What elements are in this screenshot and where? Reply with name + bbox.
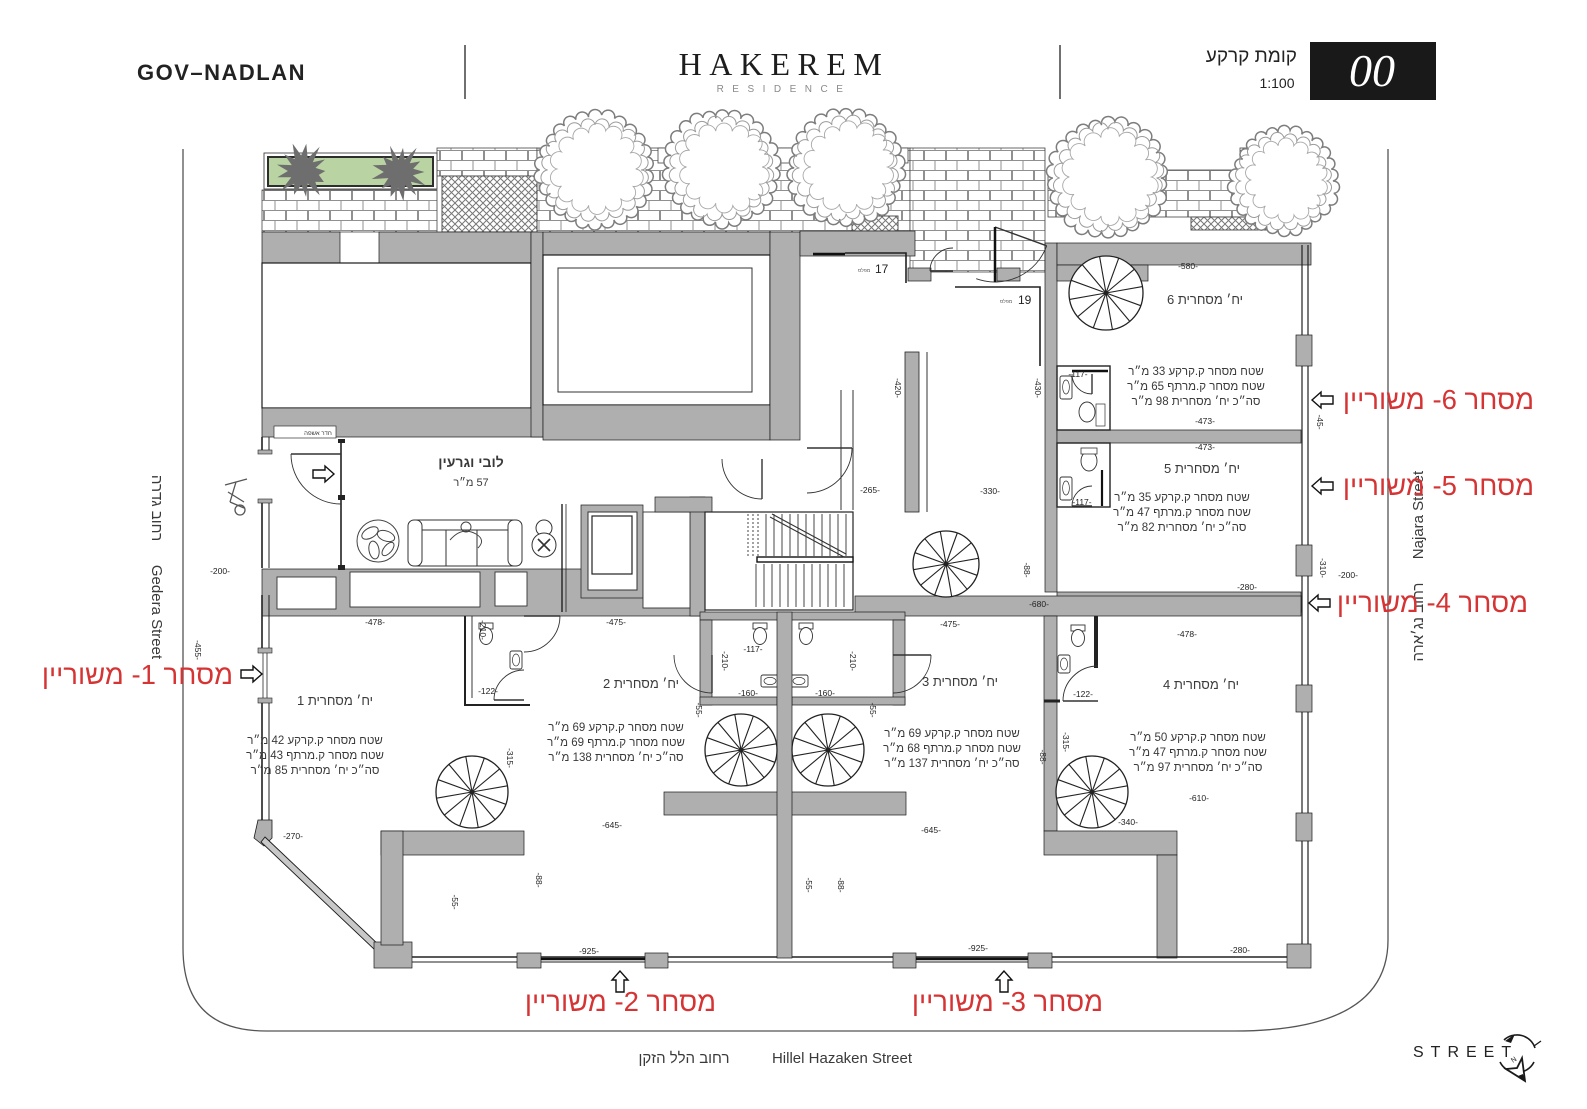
svg-text:-610-: -610- [1189, 793, 1209, 803]
svg-text:שטח מסחר ק.קרקע 50 מ״ר: שטח מסחר ק.קרקע 50 מ״ר [1130, 731, 1265, 744]
svg-text:שטח מסחר ק.קרקע 69 מ״ר: שטח מסחר ק.קרקע 69 מ״ר [548, 721, 683, 734]
svg-text:קומת קרקע: קומת קרקע [1206, 46, 1297, 67]
svg-text:-473-: -473- [1195, 442, 1215, 452]
svg-text:-478-: -478- [365, 617, 385, 627]
svg-text:RESIDENCE: RESIDENCE [717, 84, 852, 95]
svg-text:שטח מסחר ק.מרתף 47 מ״ר: שטח מסחר ק.מרתף 47 מ״ר [1113, 506, 1251, 519]
svg-text:-265-: -265- [860, 485, 880, 495]
svg-text:יח׳ מסחרית 1: יח׳ מסחרית 1 [297, 693, 373, 708]
svg-text:-200-: -200- [210, 566, 230, 576]
svg-text:לובי וגרעין: לובי וגרעין [438, 454, 503, 470]
svg-text:-117-: -117- [1068, 369, 1087, 379]
svg-text:-160-: -160- [815, 688, 835, 698]
svg-text:שטח מסחר ק.מרתף 69 מ״ר: שטח מסחר ק.מרתף 69 מ״ר [547, 736, 685, 749]
svg-text:-420-: -420- [893, 378, 903, 398]
svg-text:STREET: STREET [1413, 1044, 1518, 1061]
svg-text:-645-: -645- [602, 820, 622, 830]
svg-text:יח׳ מסחרית 4: יח׳ מסחרית 4 [1163, 677, 1239, 692]
svg-text:שטח מסחר ק.קרקע 35 מ״ר: שטח מסחר ק.קרקע 35 מ״ר [1114, 491, 1249, 504]
svg-text:מפלס: מפלס [858, 267, 871, 274]
svg-text:HAKEREM: HAKEREM [679, 46, 890, 82]
svg-text:-160-: -160- [738, 688, 758, 698]
svg-text:-430-: -430- [1033, 378, 1043, 398]
svg-text:שטח מסחר ק.קרקע 42 מ״ר: שטח מסחר ק.קרקע 42 מ״ר [247, 734, 382, 747]
svg-text:יח׳ מסחרית 3: יח׳ מסחרית 3 [922, 674, 998, 689]
svg-text:-117-: -117- [743, 644, 762, 654]
svg-text:-925-: -925- [968, 943, 988, 953]
svg-text:סה״כ יח׳ מסחרית 137 מ״ר: סה״כ יח׳ מסחרית 137 מ״ר [884, 757, 1019, 770]
svg-text:שטח מסחר ק.מרתף 68 מ״ר: שטח מסחר ק.מרתף 68 מ״ר [883, 742, 1021, 755]
svg-text:-117-: -117- [1072, 497, 1091, 507]
svg-text:19: 19 [1018, 293, 1032, 307]
svg-text:1:100: 1:100 [1259, 75, 1294, 91]
svg-text:יח׳ מסחרית 2: יח׳ מסחרית 2 [603, 676, 679, 691]
svg-text:‏57 מ״ר: ‏57 מ״ר [453, 476, 488, 489]
svg-text:יח׳ מסחרית 5: יח׳ מסחרית 5 [1164, 461, 1240, 476]
svg-text:מסחר 3- משוריין: מסחר 3- משוריין [912, 986, 1103, 1017]
svg-text:-210-: -210- [720, 651, 730, 671]
svg-text:-45-: -45- [1315, 414, 1325, 429]
svg-text:Gedera Street: Gedera Street [148, 565, 165, 660]
svg-text:שטח מסחר ק.קרקע 69 מ״ר: שטח מסחר ק.קרקע 69 מ״ר [884, 727, 1019, 740]
svg-text:יח׳ מסחרית 6: יח׳ מסחרית 6 [1167, 292, 1243, 307]
svg-text:-645-: -645- [921, 825, 941, 835]
svg-text:-925-: -925- [579, 946, 599, 956]
svg-text:-475-: -475- [940, 619, 960, 629]
svg-text:00: 00 [1349, 45, 1395, 96]
svg-text:-88-: -88- [1038, 749, 1048, 764]
svg-text:סה״כ יח׳ מסחרית 138 מ״ר: סה״כ יח׳ מסחרית 138 מ״ר [548, 751, 683, 764]
svg-text:שטח מסחר ק.מרתף 65 מ״ר: שטח מסחר ק.מרתף 65 מ״ר [1127, 380, 1265, 393]
svg-text:שטח מסחר ק.קרקע 33 מ״ר: שטח מסחר ק.קרקע 33 מ״ר [1128, 365, 1263, 378]
svg-text:-475-: -475- [606, 617, 626, 627]
svg-text:מסחר 6- משוריין: מסחר 6- משוריין [1343, 384, 1534, 415]
svg-text:-455-: -455- [193, 640, 203, 660]
svg-text:מסחר 2- משוריין: מסחר 2- משוריין [525, 986, 716, 1017]
svg-text:מפלס: מפלס [1000, 298, 1013, 305]
svg-text:-88-: -88- [1022, 562, 1032, 577]
svg-text:שטח מסחר ק.מרתף 43 מ״ר: שטח מסחר ק.מרתף 43 מ״ר [246, 749, 384, 762]
svg-text:-315-: -315- [1061, 732, 1071, 752]
svg-text:חדר אשפה: חדר אשפה [304, 431, 332, 437]
svg-text:-122-: -122- [1073, 689, 1093, 699]
svg-text:סה״כ יח׳ מסחרית 82 מ״ר: סה״כ יח׳ מסחרית 82 מ״ר [1118, 521, 1247, 534]
svg-text:-210-: -210- [478, 620, 488, 640]
svg-text:-330-: -330- [980, 486, 1000, 496]
svg-text:-280-: -280- [1230, 945, 1250, 955]
svg-text:-210-: -210- [848, 651, 858, 671]
svg-text:Hillel Hazaken Street: Hillel Hazaken Street [772, 1050, 913, 1067]
svg-text:שטח מסחר ק.מרתף 47 מ״ר: שטח מסחר ק.מרתף 47 מ״ר [1129, 746, 1267, 759]
svg-text:-315-: -315- [505, 748, 515, 768]
svg-text:-55-: -55- [694, 702, 704, 717]
svg-text:-200-: -200- [1338, 570, 1358, 580]
svg-text:סה״כ יח׳ מסחרית 98 מ״ר: סה״כ יח׳ מסחרית 98 מ״ר [1132, 395, 1261, 408]
svg-text:מסחר 5- משוריין: מסחר 5- משוריין [1343, 470, 1534, 501]
svg-text:רחוב הלל הזקן: רחוב הלל הזקן [639, 1050, 730, 1067]
svg-text:-580-: -580- [1178, 261, 1198, 271]
svg-text:מסחר 4- משוריין: מסחר 4- משוריין [1337, 587, 1528, 618]
svg-text:-88-: -88- [836, 877, 846, 892]
svg-text:רחוב גדרה: רחוב גדרה [148, 475, 165, 541]
svg-text:-478-: -478- [1177, 629, 1197, 639]
svg-text:-340-: -340- [1118, 817, 1138, 827]
svg-text:-680-: -680- [1029, 599, 1049, 609]
svg-text:מסחר 1- משוריין: מסחר 1- משוריין [42, 659, 233, 690]
svg-text:סה״כ יח׳ מסחרית 85 מ״ר: סה״כ יח׳ מסחרית 85 מ״ר [251, 764, 380, 777]
svg-text:-55-: -55- [804, 877, 814, 892]
svg-text:-280-: -280- [1237, 582, 1257, 592]
svg-text:-473-: -473- [1195, 416, 1215, 426]
svg-text:-270-: -270- [283, 831, 303, 841]
svg-text:-55-: -55- [868, 702, 878, 717]
svg-text:סה״כ יח׳ מסחרית 97 מ״ר: סה״כ יח׳ מסחרית 97 מ״ר [1134, 761, 1263, 774]
svg-text:-122-: -122- [478, 686, 498, 696]
svg-text:17: 17 [875, 262, 889, 276]
svg-text:GOV–NADLAN: GOV–NADLAN [137, 60, 306, 85]
svg-text:-55-: -55- [450, 894, 460, 909]
svg-text:-88-: -88- [534, 872, 544, 887]
svg-text:-310-: -310- [1318, 558, 1328, 578]
